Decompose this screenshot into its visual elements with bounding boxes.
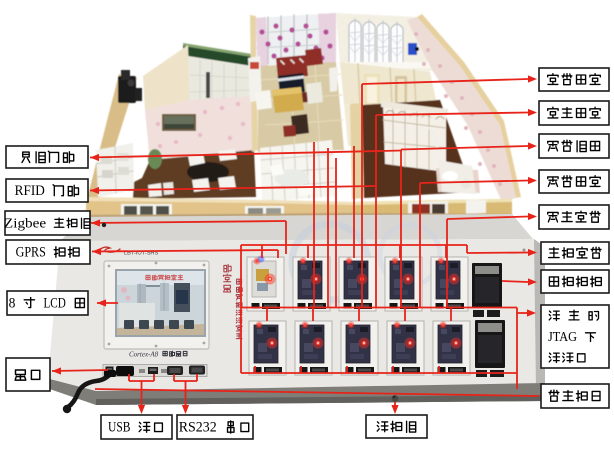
- svg-text:Cortex-A8: Cortex-A8: [129, 351, 159, 359]
- svg-text:RFID: RFID: [15, 183, 45, 199]
- svg-text:GPRS: GPRS: [16, 245, 46, 261]
- svg-text:USB: USB: [108, 420, 130, 436]
- svg-text:JTAG: JTAG: [548, 330, 577, 345]
- svg-text:RS232: RS232: [179, 420, 217, 436]
- svg-text:8: 8: [9, 296, 16, 312]
- svg-text:LCD: LCD: [43, 296, 65, 312]
- svg-text:Zigbee: Zigbee: [4, 215, 46, 230]
